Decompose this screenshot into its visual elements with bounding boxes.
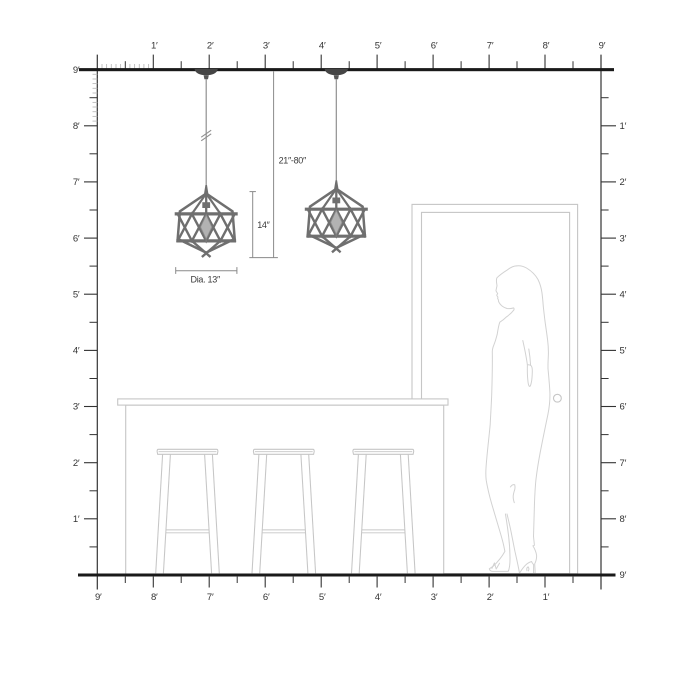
svg-text:21″-80″: 21″-80″ bbox=[279, 155, 307, 165]
svg-text:8′: 8′ bbox=[620, 514, 627, 525]
svg-text:4′: 4′ bbox=[319, 41, 326, 52]
svg-text:5′: 5′ bbox=[319, 592, 326, 603]
svg-text:9′: 9′ bbox=[599, 41, 606, 52]
svg-text:7′: 7′ bbox=[620, 458, 627, 469]
svg-text:4′: 4′ bbox=[375, 592, 382, 603]
svg-text:9′: 9′ bbox=[95, 592, 102, 603]
svg-text:8′: 8′ bbox=[151, 592, 158, 603]
svg-text:2′: 2′ bbox=[620, 177, 627, 188]
svg-text:2′: 2′ bbox=[487, 592, 494, 603]
svg-text:3′: 3′ bbox=[620, 233, 627, 244]
svg-text:5′: 5′ bbox=[375, 41, 382, 52]
svg-text:8′: 8′ bbox=[543, 41, 550, 52]
svg-text:6′: 6′ bbox=[431, 41, 438, 52]
svg-text:4′: 4′ bbox=[620, 289, 627, 300]
svg-text:7′: 7′ bbox=[73, 177, 80, 188]
svg-text:6′: 6′ bbox=[73, 233, 80, 244]
svg-text:14″: 14″ bbox=[257, 220, 270, 230]
svg-text:2′: 2′ bbox=[207, 41, 214, 52]
svg-text:1′: 1′ bbox=[543, 592, 550, 603]
svg-text:7′: 7′ bbox=[487, 41, 494, 52]
svg-text:1′: 1′ bbox=[151, 41, 158, 52]
svg-text:5′: 5′ bbox=[73, 289, 80, 300]
svg-text:9′: 9′ bbox=[620, 570, 627, 581]
svg-text:3′: 3′ bbox=[263, 41, 270, 52]
svg-text:5′: 5′ bbox=[620, 346, 627, 357]
svg-text:1′: 1′ bbox=[73, 514, 80, 525]
svg-text:4′: 4′ bbox=[73, 346, 80, 357]
svg-text:Dia. 13″: Dia. 13″ bbox=[191, 274, 221, 284]
svg-text:6′: 6′ bbox=[620, 402, 627, 413]
svg-text:6′: 6′ bbox=[263, 592, 270, 603]
svg-text:8′: 8′ bbox=[73, 121, 80, 132]
svg-text:9′: 9′ bbox=[73, 65, 80, 76]
svg-text:1′: 1′ bbox=[620, 121, 627, 132]
svg-text:2′: 2′ bbox=[73, 458, 80, 469]
svg-text:7′: 7′ bbox=[207, 592, 214, 603]
svg-text:3′: 3′ bbox=[431, 592, 438, 603]
svg-text:3′: 3′ bbox=[73, 402, 80, 413]
